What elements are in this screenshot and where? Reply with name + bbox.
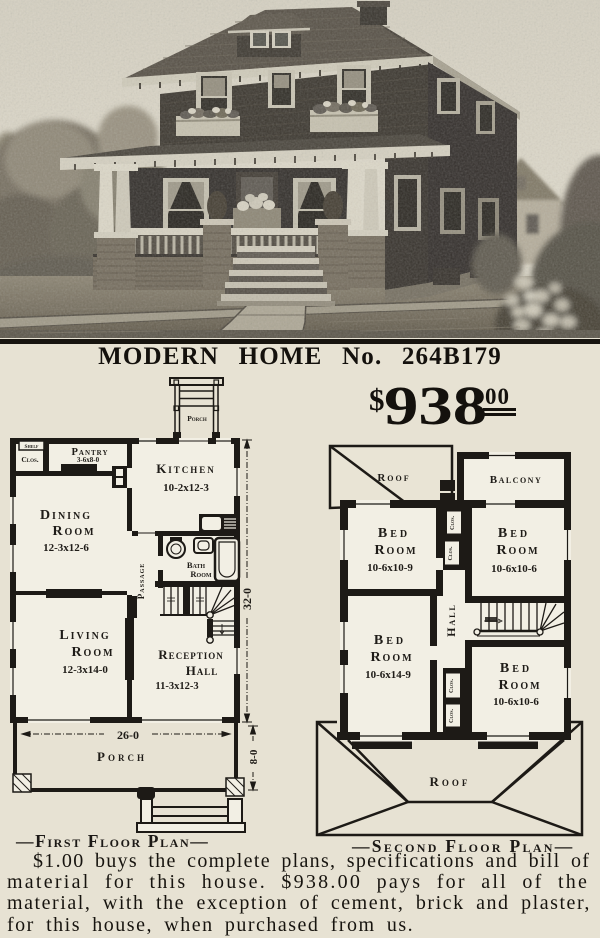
- svg-text:Room: Room: [498, 678, 541, 693]
- svg-text:32-0: 32-0: [240, 588, 254, 610]
- svg-text:Hall: Hall: [444, 603, 458, 637]
- svg-text:Living: Living: [59, 628, 110, 643]
- svg-text:Bed: Bed: [374, 633, 406, 648]
- svg-text:Clos.: Clos.: [21, 455, 38, 464]
- svg-text:10-6x14-9: 10-6x14-9: [365, 669, 411, 681]
- svg-text:Shelf: Shelf: [25, 444, 40, 450]
- svg-text:12-3x14-0: 12-3x14-0: [62, 664, 108, 676]
- svg-text:Porch: Porch: [187, 414, 207, 423]
- svg-text:Room: Room: [71, 645, 114, 660]
- svg-text:Flower Box: Flower Box: [368, 745, 395, 750]
- svg-text:Clos.: Clos.: [449, 516, 456, 530]
- svg-text:Roof: Roof: [430, 774, 471, 789]
- svg-text:Room: Room: [370, 650, 413, 665]
- svg-text:Clos.: Clos.: [448, 709, 455, 723]
- svg-text:Room: Room: [374, 543, 417, 558]
- svg-text:Room: Room: [496, 543, 539, 558]
- svg-text:Colonnade: Colonnade: [126, 636, 131, 662]
- svg-text:Reception: Reception: [158, 647, 223, 662]
- svg-text:10-2x12-3: 10-2x12-3: [163, 482, 209, 494]
- svg-text:26-0: 26-0: [117, 728, 139, 742]
- svg-text:Passage: Passage: [136, 563, 146, 600]
- svg-text:Room: Room: [52, 524, 95, 539]
- svg-text:10-6x10-6: 10-6x10-6: [493, 696, 539, 708]
- svg-text:Kitchen: Kitchen: [156, 461, 216, 476]
- svg-text:Bed: Bed: [498, 526, 530, 541]
- svg-text:Bed: Bed: [378, 526, 410, 541]
- svg-text:Balcony: Balcony: [490, 474, 543, 486]
- svg-text:Bed: Bed: [500, 661, 532, 676]
- svg-text:Clos.: Clos.: [448, 679, 455, 693]
- svg-text:12-3x12-6: 12-3x12-6: [43, 542, 89, 554]
- svg-text:Dining: Dining: [40, 508, 92, 523]
- svg-text:10-6x10-9: 10-6x10-9: [367, 562, 413, 574]
- svg-text:Colonnade: Colonnade: [61, 593, 87, 598]
- svg-text:10-6x10-6: 10-6x10-6: [491, 563, 537, 575]
- svg-text:Shelves: Shelves: [72, 467, 86, 472]
- svg-text:Roof: Roof: [377, 472, 410, 484]
- svg-text:Clos.: Clos.: [447, 546, 454, 560]
- svg-text:11-3x12-3: 11-3x12-3: [155, 681, 198, 692]
- svg-text:Porch: Porch: [97, 749, 147, 764]
- svg-text:Flower Box: Flower Box: [494, 745, 521, 750]
- svg-text:3-6x8-0: 3-6x8-0: [77, 456, 100, 464]
- svg-text:Hall: Hall: [186, 663, 219, 678]
- svg-text:Room: Room: [190, 569, 211, 579]
- svg-text:8-0: 8-0: [248, 749, 260, 764]
